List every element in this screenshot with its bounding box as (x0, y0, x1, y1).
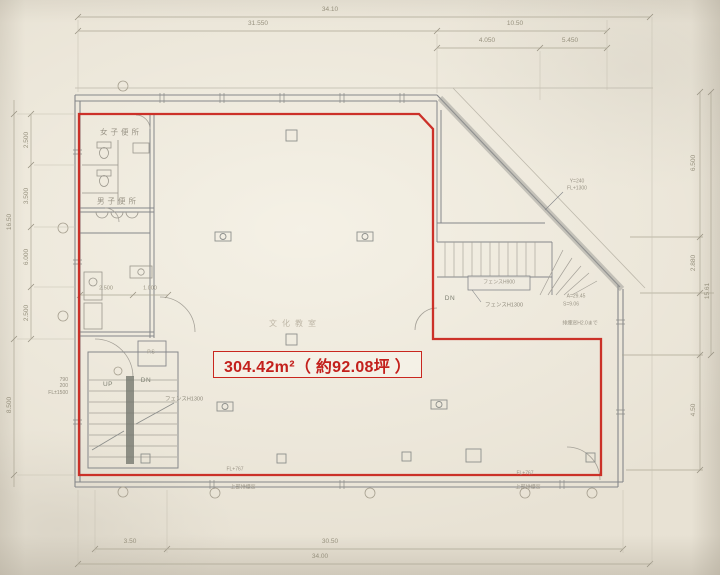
sill-right-note: FL+767 (516, 472, 533, 477)
dim-left-overall: 16.50 (7, 214, 14, 230)
diagonal-wall-band (440, 98, 622, 289)
extension-lines (17, 17, 652, 567)
scanned-floor-plan: 304.42m²（ 約92.08坪 ） 女子便所 男子便所 文化教室 P.S U… (0, 0, 720, 575)
top-smoke-right-note: 上部排煙窓 (515, 486, 540, 491)
dim-bottom-a: 3.50 (124, 539, 137, 546)
left-note-line3: FL±1500 (28, 390, 68, 396)
sill-left-note: FL+767 (226, 468, 243, 473)
dim-left-b: 3.500 (24, 188, 31, 204)
area-label-box: 304.42m²（ 約92.08坪 ） (213, 351, 422, 378)
area-label: 304.42m²（ 約92.08坪 ） (224, 353, 411, 377)
dim-inner-b: 1.000 (143, 286, 157, 292)
dim-top-right-b: 5.450 (562, 38, 578, 45)
dim-inner-a: 2.500 (99, 286, 113, 292)
stair-dn-right-label: DN (445, 296, 455, 303)
dim-right-a: 6.500 (691, 155, 698, 171)
sanitary-fixtures (82, 140, 152, 329)
left-staircase (88, 341, 178, 468)
smoke-window-note: 排煙窓H2.0まで (562, 322, 598, 327)
stair-dn-left-label: DN (141, 378, 151, 385)
room-label-classroom: 文化教室 (269, 320, 321, 328)
calc-note-line1: A=29.45 (567, 295, 586, 300)
dimension-ticks (11, 14, 714, 567)
dim-top-right-span: 10.50 (507, 21, 523, 28)
columns (141, 130, 595, 463)
outer-walls (75, 95, 623, 487)
right-staircase (437, 192, 597, 302)
left-stair-note-block: 790 200 FL±1500 (28, 377, 68, 396)
parapet-note-line2: FL+1300 (567, 187, 587, 192)
calc-note-line2: S=9.06 (563, 303, 579, 308)
door-swings (95, 115, 600, 480)
dim-top-overall: 34.10 (322, 7, 338, 14)
dim-bottom-overall: 34.00 (312, 554, 328, 561)
dim-right-lower: 4.50 (691, 404, 698, 417)
room-label-pipe-space: P.S (147, 351, 154, 356)
dim-left-c: 6.000 (24, 249, 31, 265)
dim-left-lower: 8.500 (7, 397, 14, 413)
dim-left-a: 2.500 (24, 132, 31, 148)
fence-h900-note: フェンスH900 (483, 281, 515, 286)
dim-right-b: 2.880 (691, 255, 698, 271)
dim-top-span: 31.550 (248, 21, 268, 28)
fence-h1300-right-note: フェンスH1300 (485, 303, 523, 309)
parapet-note-line1: Y=240 (570, 180, 585, 185)
dim-bottom-b: 30.50 (322, 539, 338, 546)
dim-right-overall: 15.61 (705, 283, 712, 299)
fence-h1300-left-note: フェンスH1300 (165, 397, 203, 403)
dim-left-d: 2.500 (24, 305, 31, 321)
room-label-mens-toilet: 男子便所 (97, 197, 139, 205)
stair-up-label: UP (103, 382, 113, 389)
dim-top-right-a: 4.050 (479, 38, 495, 45)
room-label-womens-toilet: 女子便所 (100, 128, 142, 136)
red-highlight-outline (79, 114, 601, 475)
top-smoke-left-note: 上部排煙窓 (230, 486, 255, 491)
